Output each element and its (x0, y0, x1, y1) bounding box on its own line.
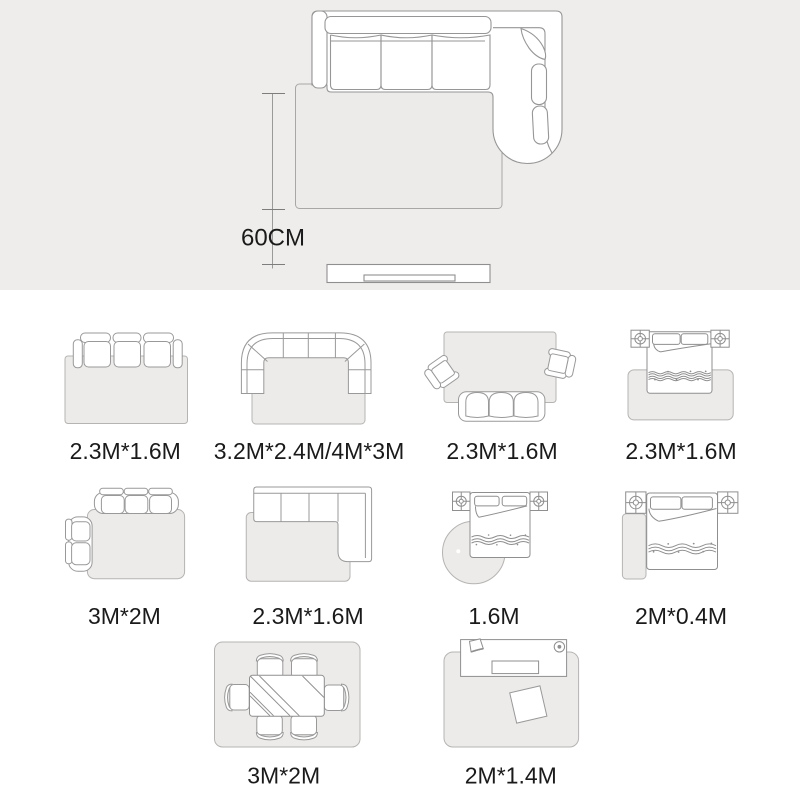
svg-text:3M*2M: 3M*2M (88, 603, 161, 629)
svg-text:2.3M*1.6M: 2.3M*1.6M (625, 438, 736, 464)
svg-text:60CM: 60CM (241, 225, 305, 252)
svg-text:1.6M: 1.6M (468, 603, 519, 629)
svg-text:2.3M*1.6M: 2.3M*1.6M (446, 438, 557, 464)
svg-text:3M*2M: 3M*2M (247, 762, 320, 788)
svg-text:2M*0.4M: 2M*0.4M (635, 603, 727, 629)
svg-text:2M*1.4M: 2M*1.4M (465, 762, 557, 788)
svg-text:2.3M*1.6M: 2.3M*1.6M (252, 603, 363, 629)
svg-text:2.3M*1.6M: 2.3M*1.6M (70, 438, 181, 464)
svg-text:3.2M*2.4M/4M*3M: 3.2M*2.4M/4M*3M (214, 438, 404, 464)
